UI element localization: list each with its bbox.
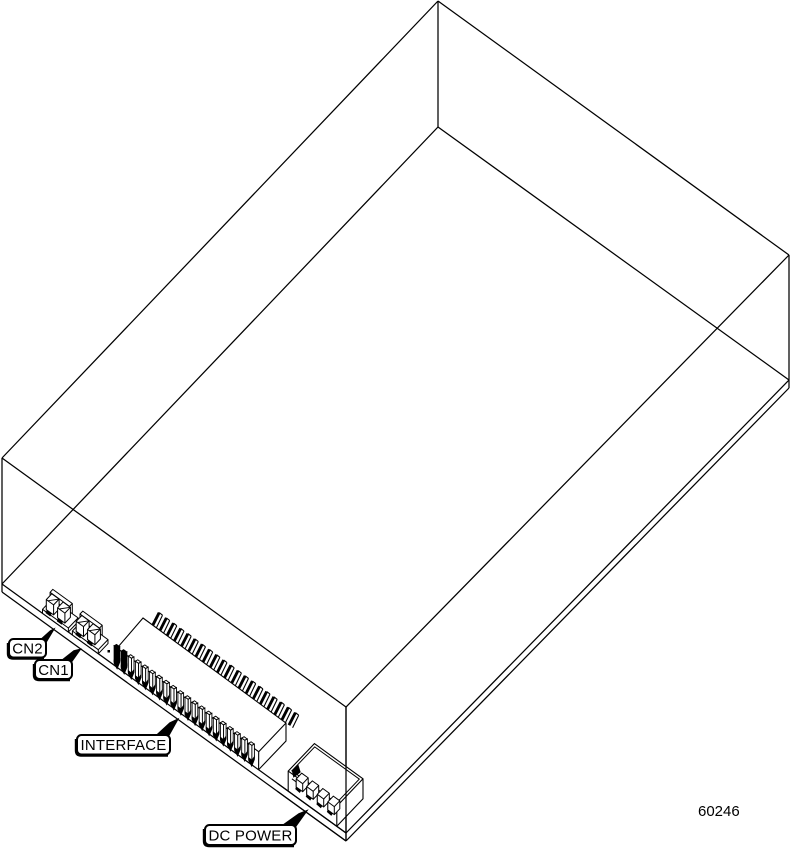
svg-text:DC POWER: DC POWER bbox=[208, 827, 292, 844]
svg-text:INTERFACE: INTERFACE bbox=[81, 737, 167, 754]
svg-text:CN1: CN1 bbox=[38, 662, 69, 679]
svg-text:CN2: CN2 bbox=[12, 641, 43, 658]
svg-text:60246: 60246 bbox=[698, 803, 740, 820]
